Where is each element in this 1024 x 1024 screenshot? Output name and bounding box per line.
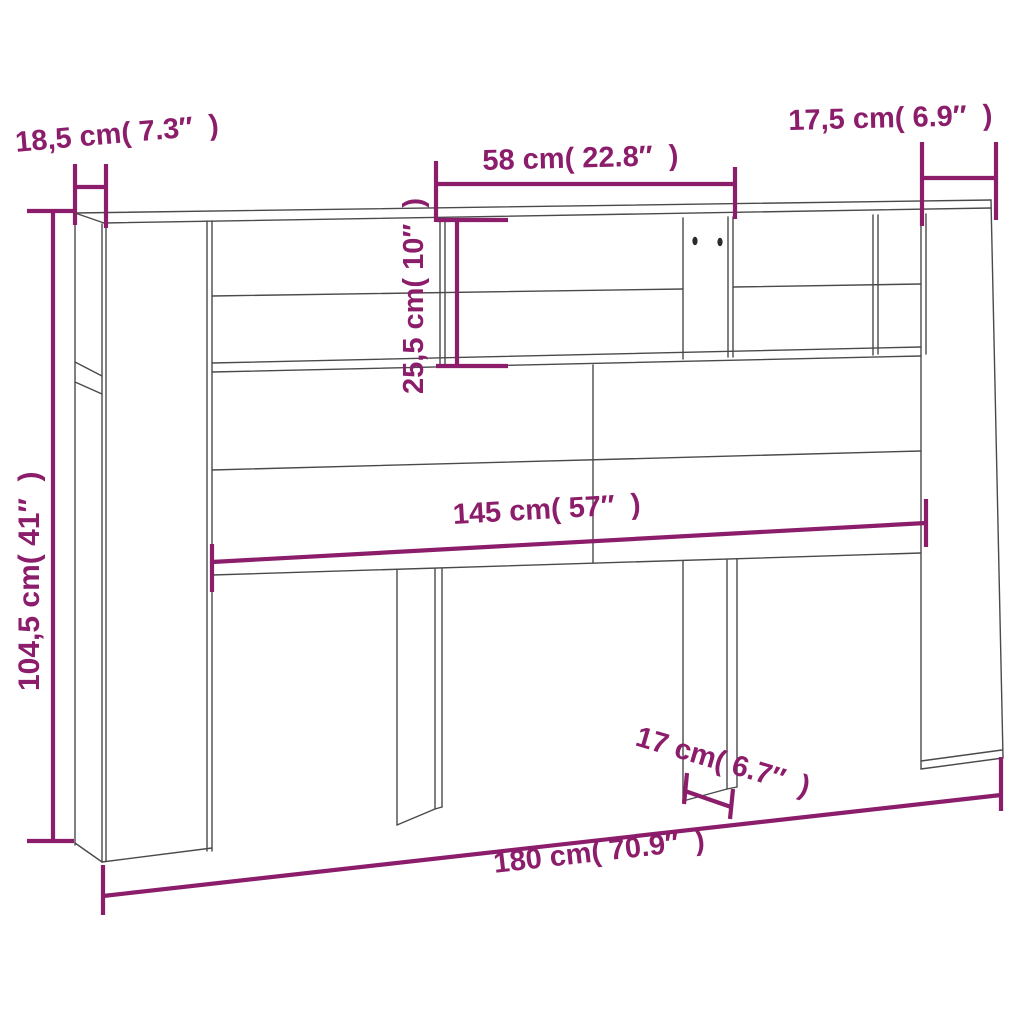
cabinet-outline — [75, 200, 1003, 862]
dimension-shelf-height-lines — [436, 220, 508, 367]
dimension-total-width-lines — [103, 757, 1001, 915]
dimension-label-shelf-width: 58 cm( 22.8″ ) — [482, 141, 679, 178]
dimension-label-shelf-height: 25,5 cm( 10″ ) — [399, 198, 431, 394]
shelf-pin-holes-icon — [692, 237, 722, 246]
diagram-canvas: 18,5 cm( 7.3″ ) 58 cm( 22.8″ ) 17,5 cm( … — [0, 0, 1024, 1024]
dimension-label-height: 104,5 cm( 41″ ) — [13, 472, 46, 692]
dimension-depth-right-lines — [922, 142, 996, 226]
dimension-label-depth-right: 17,5 cm( 6.9″ ) — [788, 101, 993, 138]
